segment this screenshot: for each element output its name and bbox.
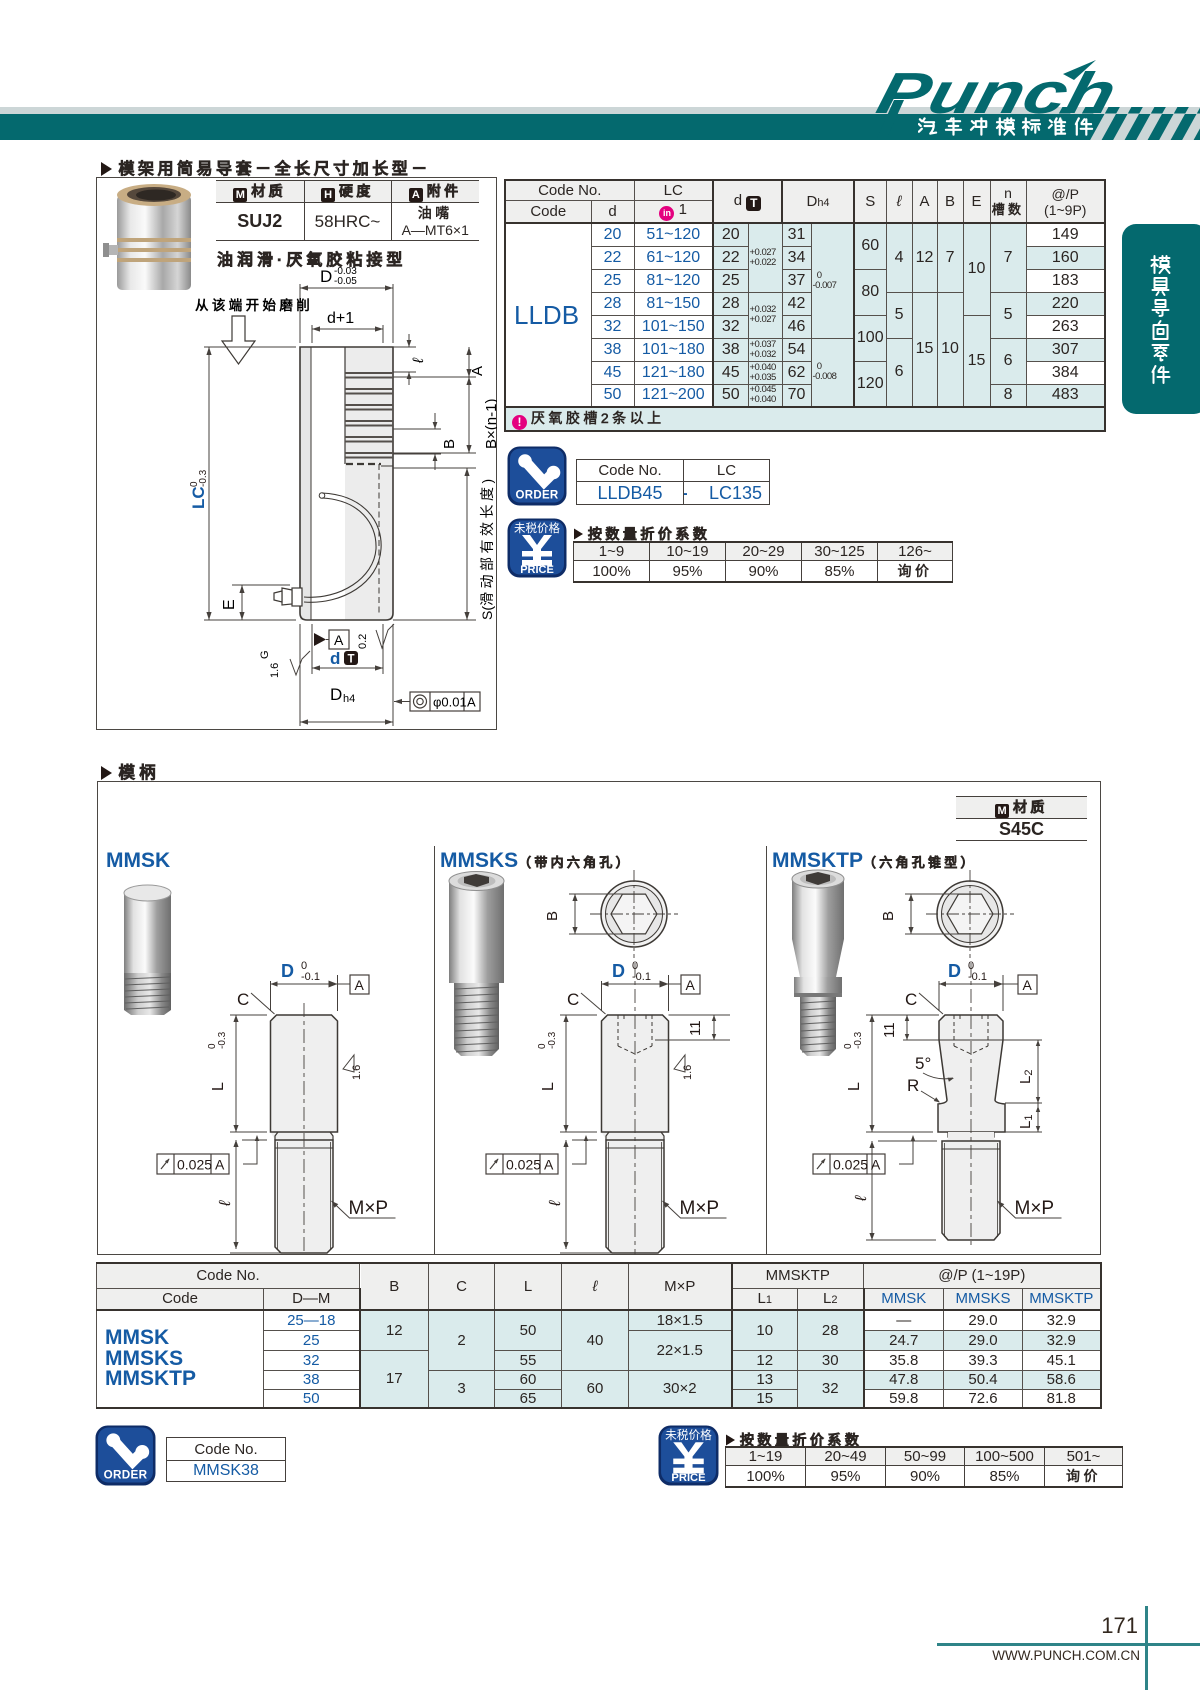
svg-text:-0.1: -0.1 (632, 971, 651, 983)
svg-text:未税价格: 未税价格 (514, 521, 560, 535)
svg-text:D: D (612, 961, 625, 981)
svg-text:G: G (259, 650, 271, 659)
svg-text:D: D (281, 961, 294, 981)
svg-text:0.025: 0.025 (833, 1157, 868, 1173)
svg-text:ℓ: ℓ (547, 1200, 564, 1207)
svg-text:L: L (846, 1082, 863, 1091)
svg-text:1.6: 1.6 (269, 663, 281, 678)
svg-text:d+1: d+1 (327, 310, 354, 327)
svg-text:0.025: 0.025 (177, 1157, 212, 1173)
svg-text:R: R (907, 1076, 919, 1095)
svg-text:-0.3: -0.3 (547, 1031, 558, 1049)
svg-text:0.2: 0.2 (357, 634, 369, 649)
svg-text:B: B (544, 911, 561, 921)
svg-text:A: A (215, 1157, 225, 1173)
svg-text:A: A (334, 632, 344, 648)
svg-text:PRICE: PRICE (671, 1472, 706, 1484)
svg-text:1.6: 1.6 (682, 1065, 694, 1080)
svg-text:φ0.01: φ0.01 (433, 695, 467, 710)
svg-text:1.6: 1.6 (351, 1065, 363, 1080)
svg-text:未税价格: 未税价格 (665, 1428, 712, 1442)
svg-text:ORDER: ORDER (515, 490, 558, 502)
svg-text:C: C (237, 990, 249, 1009)
svg-text:M×P: M×P (349, 1198, 389, 1219)
svg-text:T: T (348, 654, 355, 666)
svg-text:A: A (544, 1157, 554, 1173)
svg-text:L: L (540, 1082, 557, 1091)
svg-text:C: C (567, 990, 579, 1009)
svg-text:D: D (948, 961, 961, 981)
svg-text:A: A (871, 1157, 881, 1173)
svg-text:A: A (469, 366, 486, 376)
svg-text:ℓ: ℓ (853, 1195, 870, 1202)
svg-text:ORDER: ORDER (104, 1468, 148, 1481)
svg-text:-0.1: -0.1 (968, 971, 987, 983)
svg-text:5°: 5° (915, 1054, 931, 1073)
svg-text:-0.1: -0.1 (301, 971, 320, 983)
svg-text:M×P: M×P (1015, 1198, 1055, 1219)
svg-text:E: E (221, 599, 238, 610)
svg-text:11: 11 (881, 1022, 898, 1038)
svg-text:M×P: M×P (680, 1198, 720, 1219)
svg-text:B: B (441, 439, 458, 449)
svg-text:A: A (686, 977, 696, 993)
svg-text:B: B (880, 911, 897, 921)
svg-text:ℓ: ℓ (217, 1200, 234, 1207)
svg-text:L2: L2 (1017, 1070, 1035, 1084)
svg-text:-0.3: -0.3 (198, 469, 209, 487)
svg-text:D: D (320, 267, 332, 286)
svg-text:-0.3: -0.3 (217, 1031, 228, 1049)
svg-text:-0.05: -0.05 (334, 276, 357, 287)
svg-text:B×(n-1): B×(n-1) (483, 399, 497, 449)
svg-text:ℓ: ℓ (410, 357, 427, 364)
svg-text:A: A (467, 695, 476, 710)
svg-text:L1: L1 (1017, 1115, 1035, 1129)
svg-text:0.025: 0.025 (506, 1157, 541, 1173)
svg-text:11: 11 (687, 1020, 704, 1036)
svg-text:LC: LC (189, 486, 208, 509)
svg-text:-0.3: -0.3 (853, 1031, 864, 1049)
svg-text:S(滑动部有效长度): S(滑动部有效长度) (479, 479, 495, 620)
svg-text:d: d (330, 649, 340, 668)
svg-text:从该端开始磨削: 从该端开始磨削 (195, 297, 313, 313)
svg-text:PRICE: PRICE (520, 564, 554, 576)
svg-text:C: C (905, 990, 917, 1009)
svg-text:A: A (355, 977, 365, 993)
svg-text:D: D (330, 685, 342, 704)
svg-text:L: L (210, 1082, 227, 1091)
svg-text:A: A (1023, 977, 1033, 993)
svg-text:h4: h4 (343, 693, 355, 705)
